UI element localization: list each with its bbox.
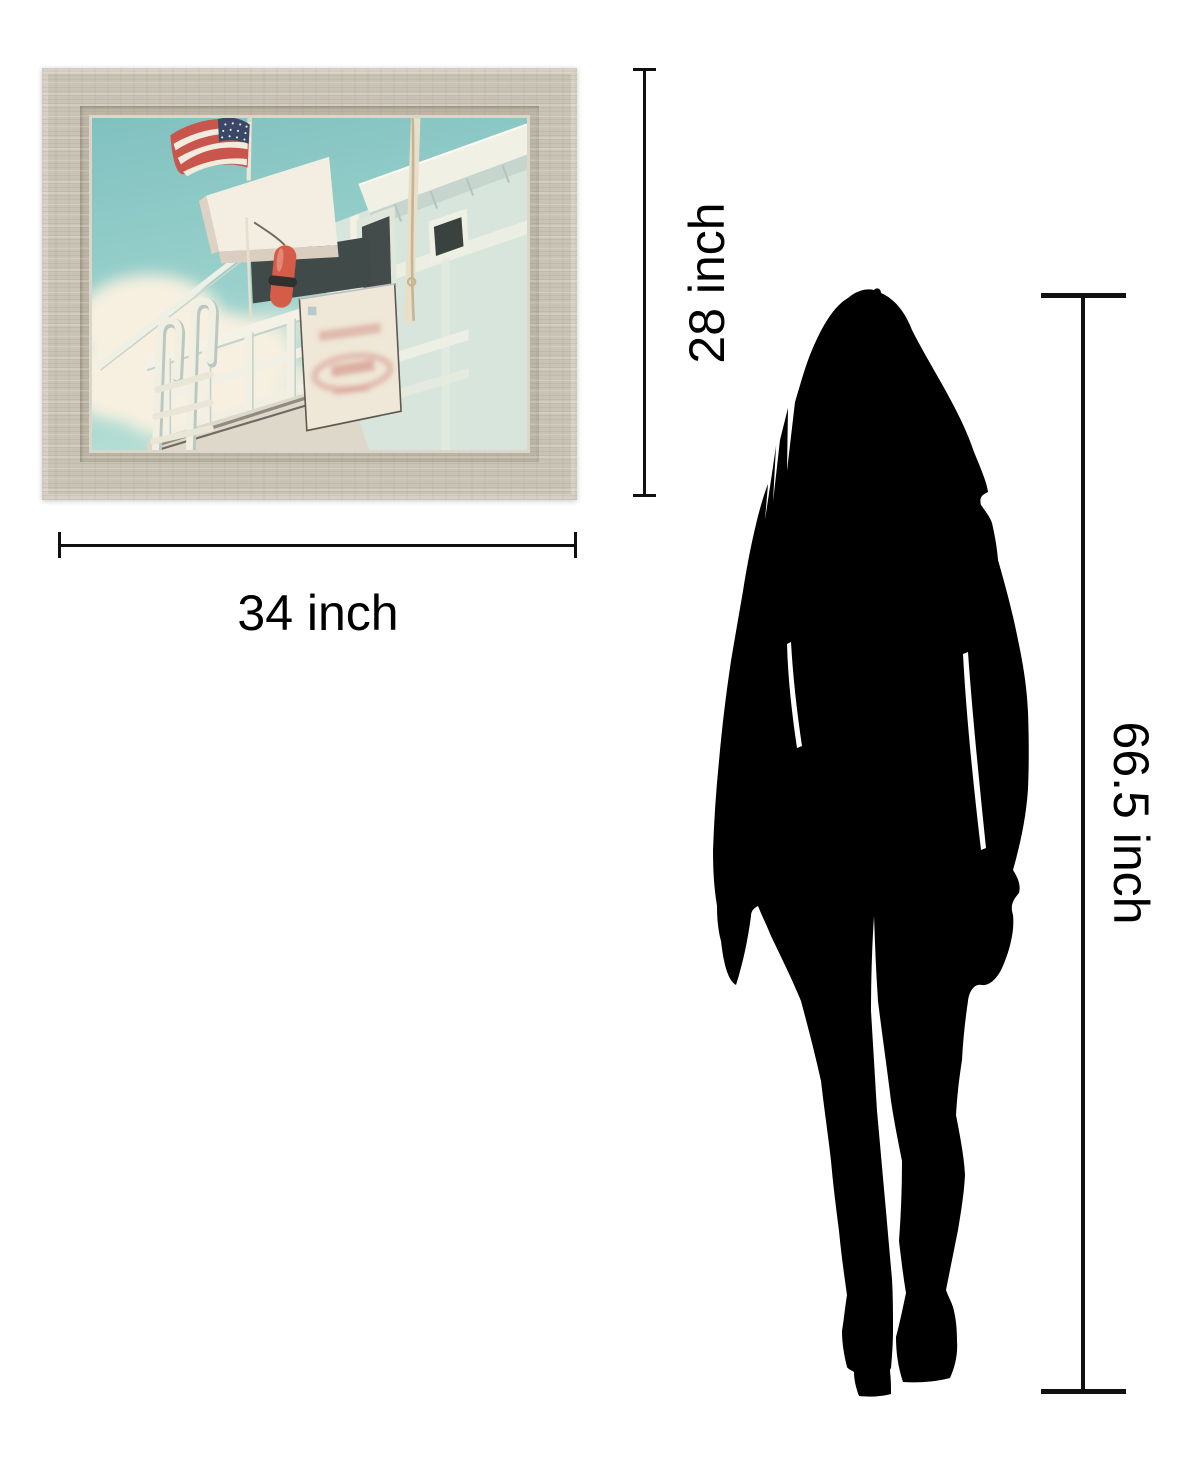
height-dimension-cap-top <box>633 68 656 71</box>
artwork-image <box>89 115 530 453</box>
height-dimension-cap-bottom <box>633 494 656 497</box>
woman-silhouette-shape <box>713 288 1029 1396</box>
person-height-label: 66.5 inch <box>1106 722 1156 925</box>
sign-board <box>299 284 401 431</box>
person-height-cap-bottom <box>1041 1389 1126 1394</box>
person-height-line <box>1081 295 1085 1392</box>
lifeguard-tower-artwork <box>92 118 527 450</box>
width-dimension-cap-right <box>574 532 577 558</box>
width-dimension-line <box>59 544 577 547</box>
framed-artwork <box>42 68 577 500</box>
person-height-cap-top <box>1041 293 1126 298</box>
size-comparison-diagram: 28 inch 34 inch 66.5 inch <box>0 0 1200 1463</box>
person-silhouette <box>700 288 1040 1398</box>
width-dimension-cap-left <box>58 532 61 558</box>
height-dimension-line <box>643 68 646 497</box>
width-dimension-label: 34 inch <box>237 588 398 638</box>
